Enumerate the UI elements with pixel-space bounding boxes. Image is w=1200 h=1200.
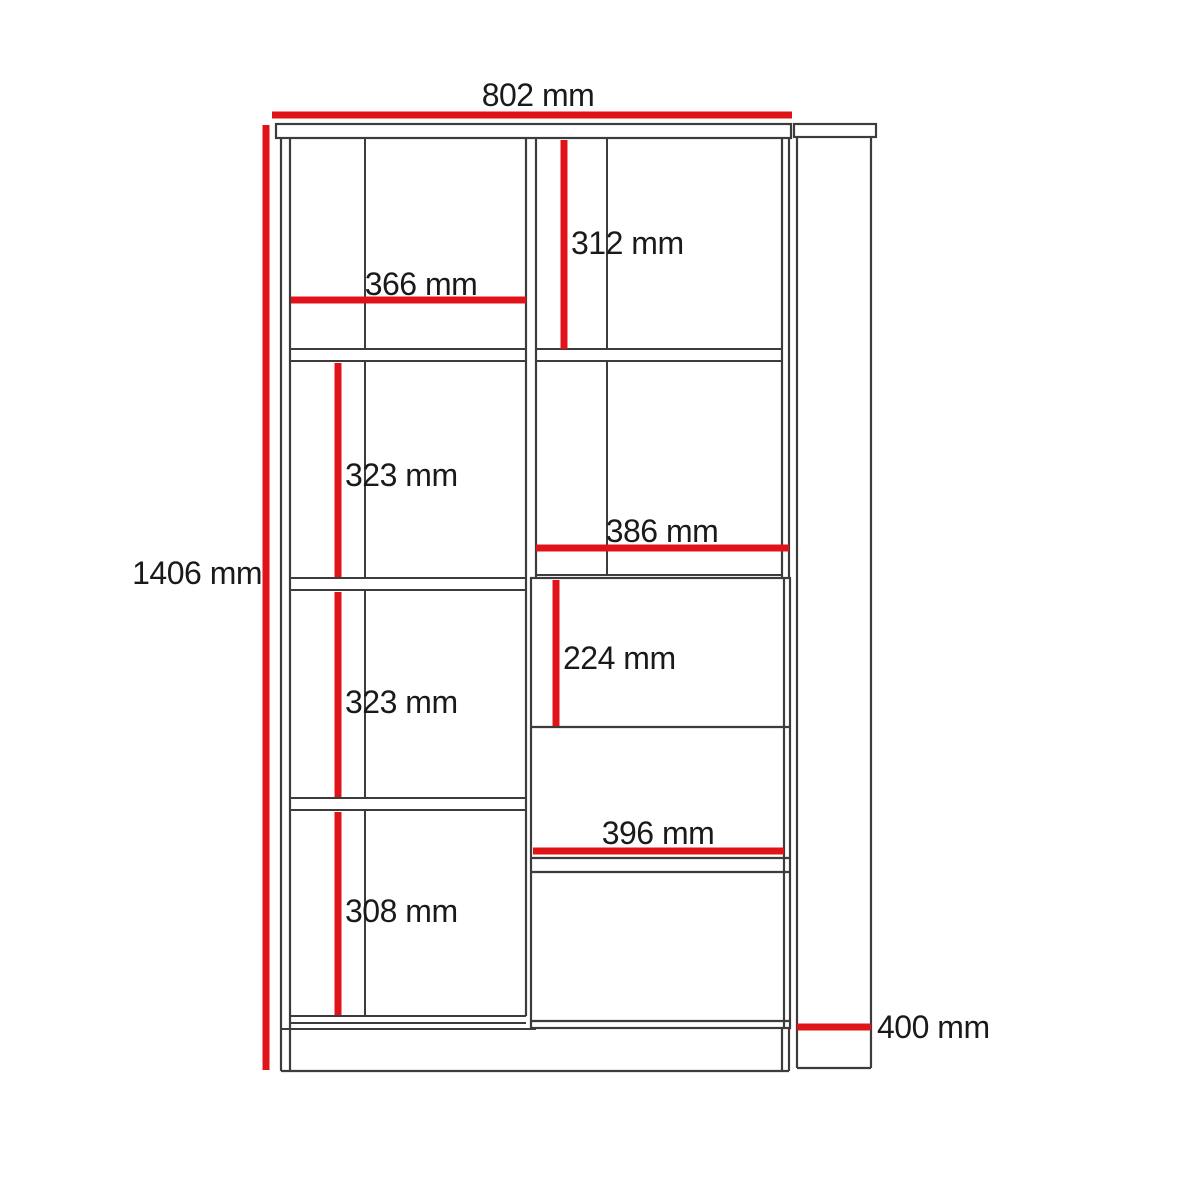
dimension-label-left-middle-compartment-height: 323 mm [345, 686, 458, 718]
dimension-label-flap-front-height: 224 mm [563, 642, 676, 674]
dimension-label-right-top-compartment-height: 312 mm [571, 227, 684, 259]
dimension-label-left-bottom-compartment-height: 308 mm [345, 895, 458, 927]
side-elevation-outline [794, 124, 876, 1068]
dimension-label-left-upper-compartment-height: 323 mm [345, 459, 458, 491]
right-column-shelves [536, 138, 782, 575]
top-board [276, 124, 791, 138]
dimension-label-overall-width: 802 mm [482, 79, 595, 111]
dimension-label-depth: 400 mm [877, 1011, 990, 1043]
technical-drawing-page: 802 mm 1406 mm 366 mm 312 mm 323 mm 386 … [0, 0, 1200, 1200]
dimension-label-overall-height: 1406 mm [132, 557, 262, 589]
dimension-label-right-compartment-width: 386 mm [606, 515, 719, 547]
dimension-label-drawer-front-width: 396 mm [602, 817, 715, 849]
furniture-dimension-drawing [0, 0, 1200, 1200]
dimension-label-left-compartment-width: 366 mm [365, 268, 478, 300]
side-top-board [794, 124, 876, 137]
